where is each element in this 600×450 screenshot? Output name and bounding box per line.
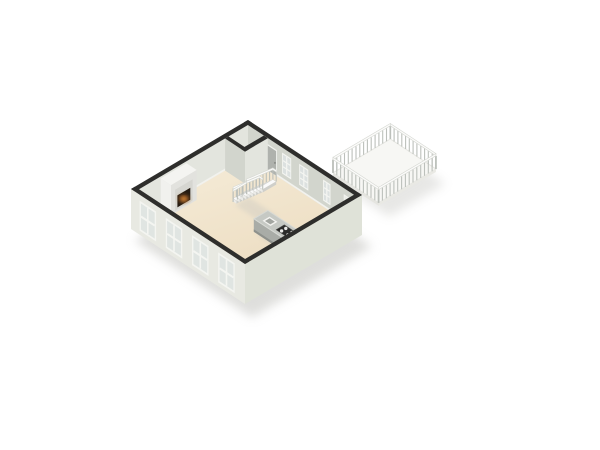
door-handle — [274, 162, 276, 164]
burner — [280, 229, 283, 232]
burner — [284, 227, 287, 230]
floorplan-canvas — [0, 0, 600, 450]
fire-flame — [181, 197, 186, 201]
floorplan-3d-view — [0, 0, 600, 450]
